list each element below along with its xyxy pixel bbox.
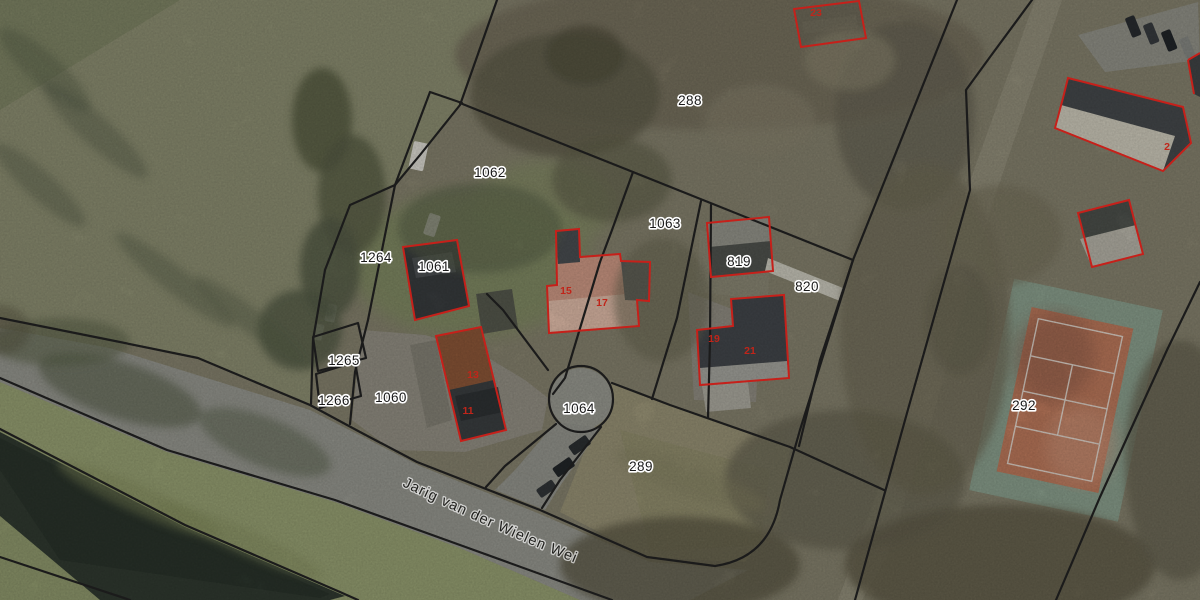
- parcel-label-1064: 1064: [563, 401, 595, 416]
- parcel-label-819: 819: [727, 254, 751, 269]
- parcel-label-289: 289: [629, 459, 653, 474]
- parcel-label-1266: 1266: [318, 393, 350, 408]
- house-number-11: 11: [462, 405, 473, 417]
- house-number-19: 19: [708, 333, 720, 345]
- house-number-17: 17: [596, 297, 608, 309]
- parcel-label-1264: 1264: [360, 250, 392, 265]
- parcel-label-1061: 1061: [418, 259, 450, 274]
- house-number-13: 13: [467, 369, 479, 381]
- house-number-23: 23: [810, 7, 822, 19]
- cadastral-aerial-map[interactable]: Jarig van der Wielen Wei 288106210638198…: [0, 0, 1200, 600]
- parcel-label-820: 820: [795, 279, 819, 294]
- parcel-label-292: 292: [1012, 398, 1036, 413]
- parcel-label-1060: 1060: [375, 390, 407, 405]
- house-number-21: 21: [744, 345, 756, 357]
- parcel-label-1265: 1265: [328, 353, 360, 368]
- map-viewport[interactable]: Jarig van der Wielen Wei 288106210638198…: [0, 0, 1200, 600]
- house-number-2: 2: [1164, 141, 1170, 153]
- parcel-label-288: 288: [678, 93, 702, 108]
- parcel-label-1062: 1062: [474, 165, 506, 180]
- house-number-15: 15: [560, 285, 572, 297]
- parcel-label-1063: 1063: [649, 216, 681, 231]
